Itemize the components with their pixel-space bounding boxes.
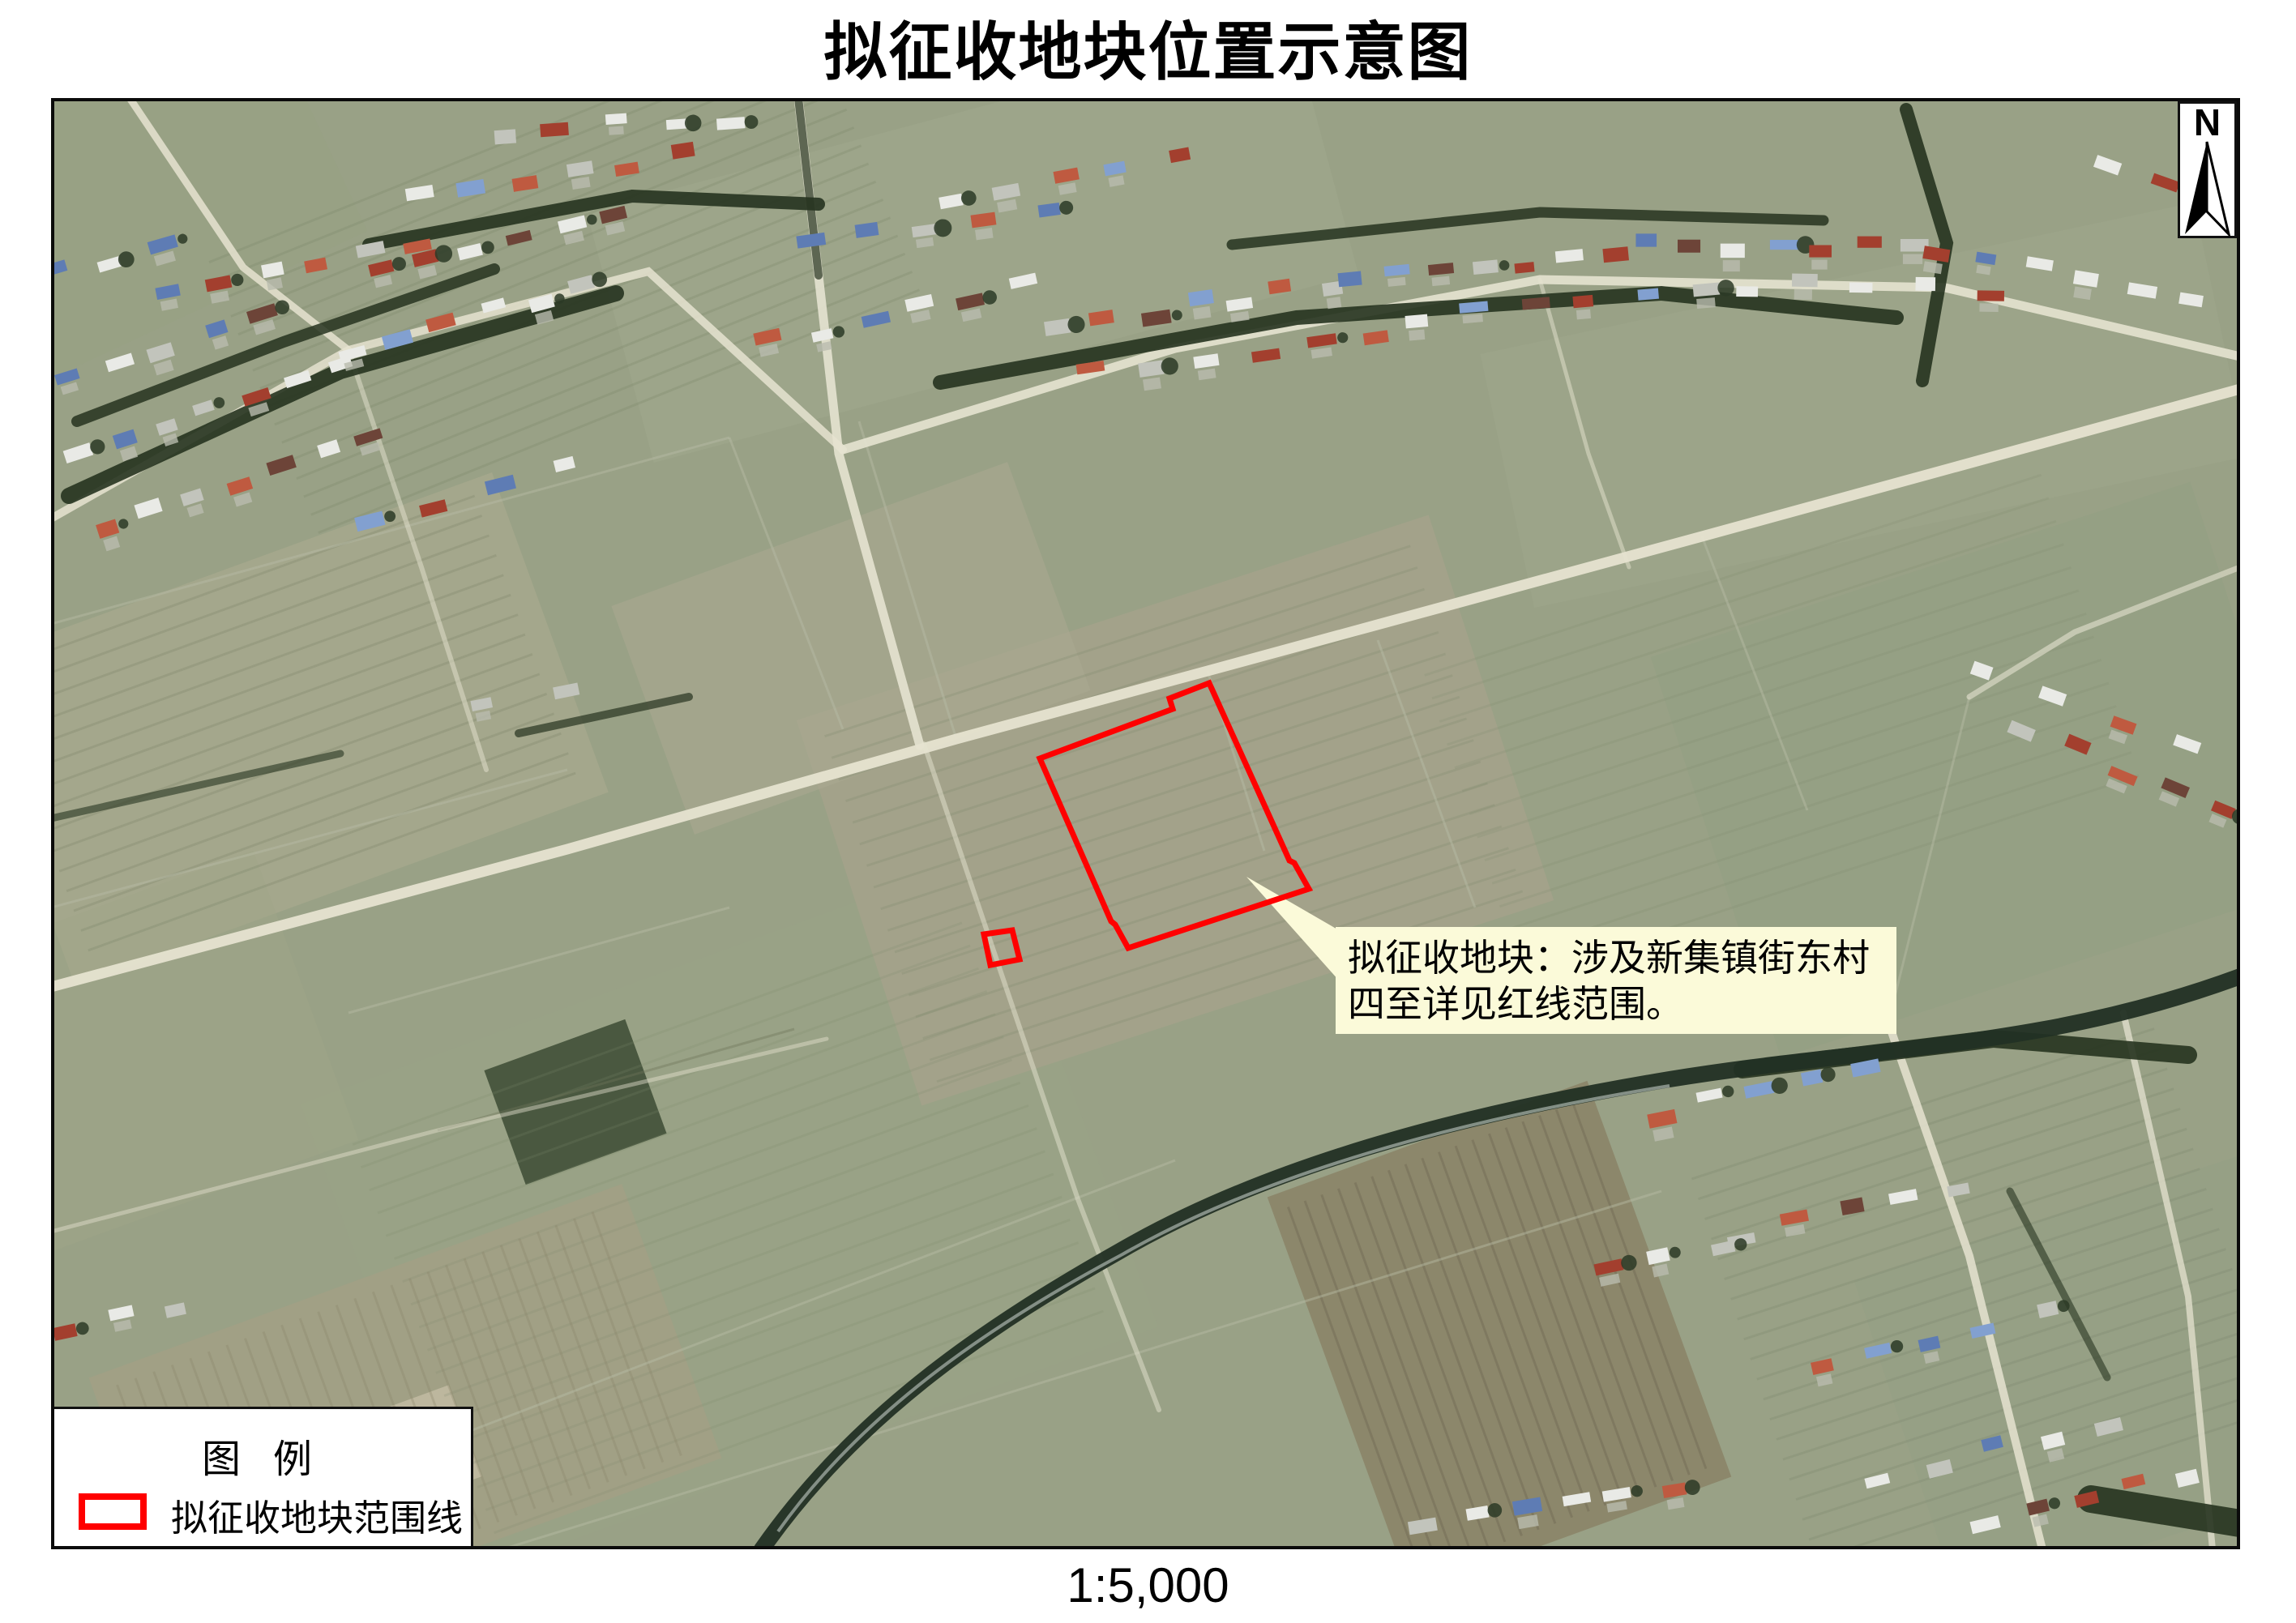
north-label: N <box>2180 104 2234 141</box>
callout-line: 拟征收地块：涉及新集镇街东村 <box>1348 935 1896 981</box>
legend: 图 例 拟征收地块范围线 <box>54 1407 473 1546</box>
north-arrow-icon <box>2180 139 2234 237</box>
callout-box: 拟征收地块：涉及新集镇街东村 四至详见红线范围。 <box>1336 927 1896 1034</box>
north-indicator: N <box>2178 101 2237 238</box>
legend-item-label: 拟征收地块范围线 <box>171 1488 463 1541</box>
page-title: 拟征收地块位置示意图 <box>0 2 2296 92</box>
legend-title: 图 例 <box>54 1427 471 1484</box>
map-frame: 拟征收地块：涉及新集镇街东村 四至详见红线范围。 图 例 拟征收地块范围线 N <box>51 98 2240 1549</box>
plot-boundary-swatch-icon <box>79 1493 147 1530</box>
callout-line: 四至详见红线范围。 <box>1348 981 1896 1027</box>
satellite-imagery <box>54 101 2237 1546</box>
scale-label: 1:5,000 <box>0 1557 2296 1613</box>
